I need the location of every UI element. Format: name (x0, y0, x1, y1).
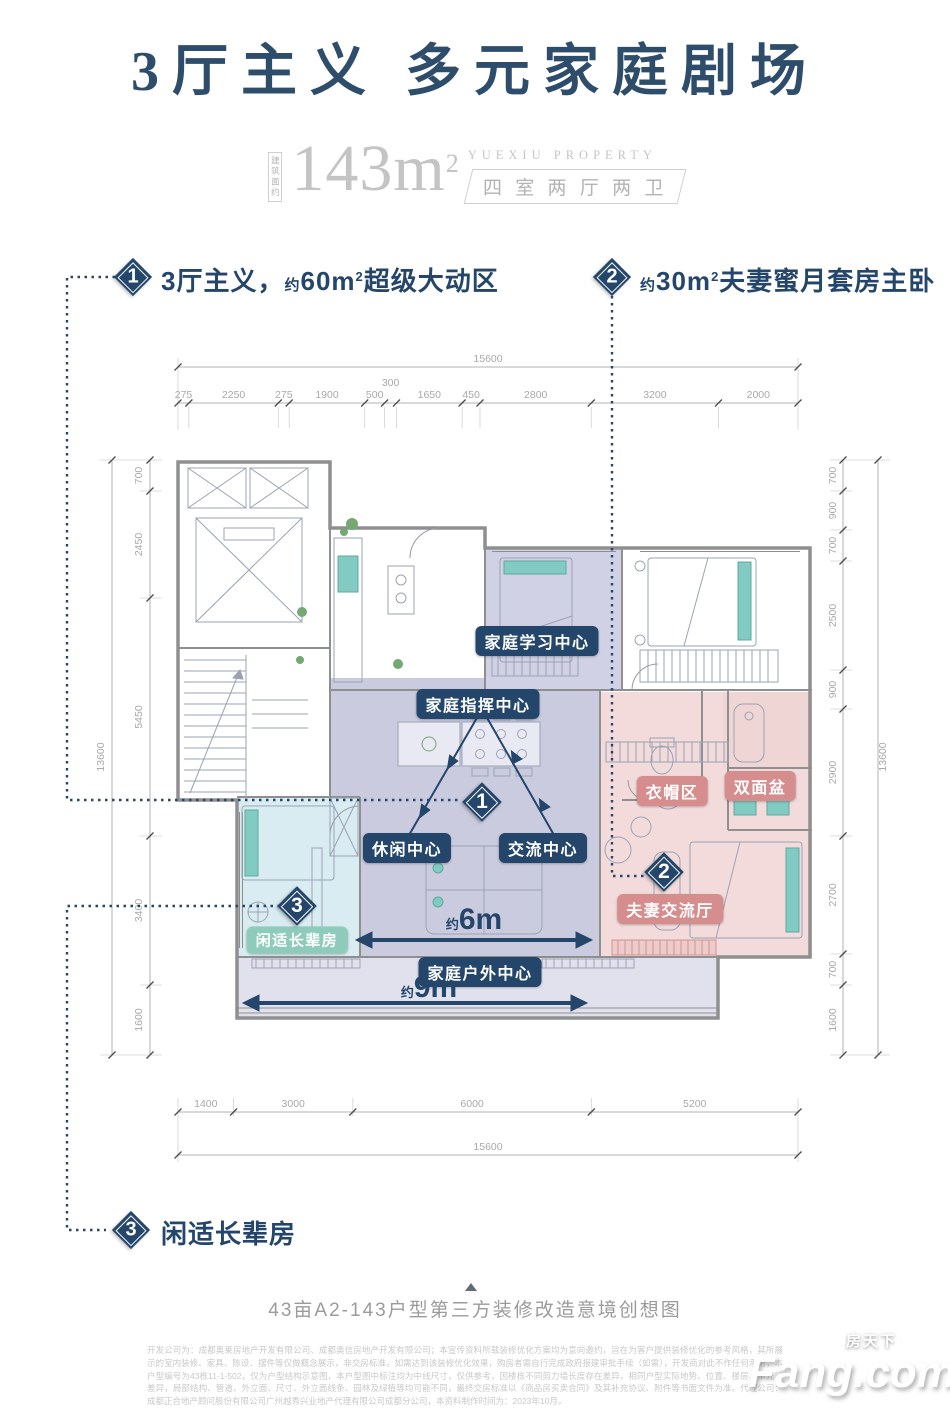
svg-text:5200: 5200 (683, 1098, 707, 1110)
svg-text:3000: 3000 (282, 1098, 306, 1110)
svg-text:900: 900 (827, 502, 839, 520)
badge-cloakroom: 衣帽区 (637, 776, 708, 806)
fang-watermark-en: Fang.com (748, 1351, 948, 1395)
svg-text:2900: 2900 (827, 761, 839, 785)
svg-text:15600: 15600 (473, 353, 502, 365)
svg-text:13600: 13600 (95, 742, 107, 771)
legal-disclaimer: 开发公司为：成都奥莱房地产开发有限公司、成都奥信房地产开发有限公司；本宣传资料所… (147, 1344, 783, 1408)
svg-text:2000: 2000 (747, 389, 771, 401)
plan-caption: 43亩A2-143户型第三方装修改造意境创想图 (0, 1295, 950, 1322)
svg-text:1600: 1600 (133, 1008, 145, 1032)
plan-diamond-3: 3 (277, 886, 317, 926)
svg-text:275: 275 (175, 389, 193, 401)
listing-floorplan-page: { "colors": { "navy": "#24466b", "title_… (0, 0, 950, 1400)
svg-text:2800: 2800 (524, 389, 548, 401)
svg-text:500: 500 (366, 389, 384, 401)
svg-text:700: 700 (133, 467, 145, 485)
svg-text:2700: 2700 (827, 883, 839, 907)
fang-watermark-logo: 房天下 Fang.com (748, 1330, 948, 1395)
svg-text:275: 275 (275, 389, 293, 401)
measure-9m-label: 约9m (401, 971, 457, 1005)
svg-text:1400: 1400 (194, 1098, 218, 1110)
svg-text:450: 450 (462, 389, 480, 401)
elevator-stair-core (184, 468, 308, 800)
badge-couple-lounge: 夫妻交流厅 (617, 894, 723, 924)
svg-text:700: 700 (827, 961, 839, 979)
svg-text:13600: 13600 (877, 742, 889, 771)
badge-family-study-center: 家庭学习中心 (475, 626, 598, 656)
svg-text:1650: 1650 (418, 389, 442, 401)
caption-triangle-icon (465, 1283, 477, 1291)
badge-leisure-center: 休闲中心 (363, 833, 451, 863)
badge-family-command-center: 家庭指挥中心 (416, 689, 539, 719)
svg-text:2250: 2250 (222, 389, 246, 401)
svg-text:700: 700 (827, 537, 839, 555)
svg-text:2450: 2450 (133, 533, 145, 557)
measure-6m-label: 约6m (446, 903, 502, 937)
svg-text:3400: 3400 (133, 899, 145, 923)
badge-double-basin: 双面盆 (725, 771, 796, 801)
svg-text:5450: 5450 (133, 705, 145, 729)
svg-text:6000: 6000 (460, 1098, 484, 1110)
plan-diamond-2: 2 (644, 852, 684, 892)
svg-text:700: 700 (827, 467, 839, 485)
svg-text:2500: 2500 (827, 604, 839, 628)
svg-text:1600: 1600 (827, 1008, 839, 1032)
svg-text:900: 900 (827, 681, 839, 699)
svg-text:300: 300 (382, 377, 400, 389)
plan-diamond-1: 1 (462, 782, 502, 822)
kitchen-fixtures (334, 538, 414, 682)
plants (296, 518, 403, 669)
svg-text:3200: 3200 (643, 389, 667, 401)
badge-elder-room: 闲适长辈房 (247, 927, 348, 954)
svg-text:1900: 1900 (315, 389, 339, 401)
badge-social-center: 交流中心 (499, 833, 587, 863)
svg-text:15600: 15600 (473, 1141, 502, 1153)
